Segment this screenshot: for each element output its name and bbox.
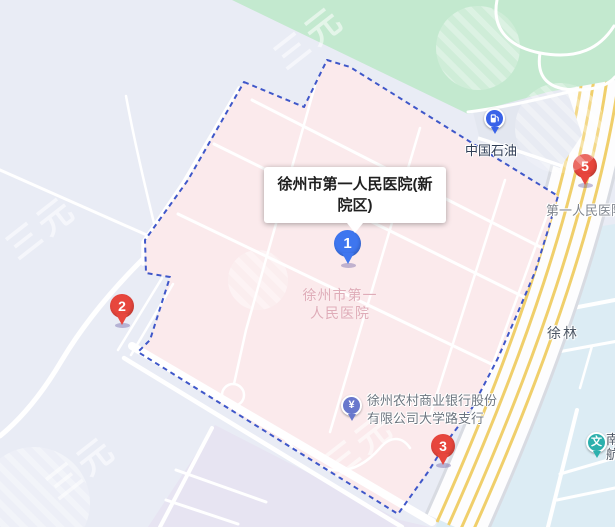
map-canvas[interactable] <box>0 0 615 527</box>
petrochina-pin[interactable] <box>484 108 505 129</box>
hospital-area-label-line1: 徐州市第一 <box>288 286 392 304</box>
bank-pin[interactable]: ¥ <box>341 395 362 416</box>
place-callout[interactable]: 徐州市第一人民医院(新 院区) <box>264 167 446 223</box>
marker-2[interactable]: 2 <box>110 294 134 318</box>
bank-label-line2: 有限公司大学路支行 <box>367 410 497 428</box>
bank-label: 徐州农村商业银行股份 有限公司大学路支行 <box>367 392 497 428</box>
xulin-road-label: 徐林 <box>547 323 579 343</box>
marker-5[interactable]: 5 <box>573 154 597 178</box>
marker-3-number: 3 <box>439 438 447 454</box>
petrochina-label: 中国石油 <box>449 140 533 159</box>
map-viewport[interactable]: 三元 三元 三元 三元 徐州市第一 人民医院 中国石油 第一人民医院 徐林 徐州… <box>0 0 615 527</box>
hospital-roadside-label: 第一人民医院 <box>546 200 615 219</box>
bank-label-line1: 徐州农村商业银行股份 <box>367 392 497 410</box>
marker-5-number: 5 <box>581 158 589 174</box>
school-icon: 文 <box>591 436 602 448</box>
marker-3[interactable]: 3 <box>431 434 455 458</box>
school-pin[interactable]: 文 <box>586 432 607 453</box>
fuel-pump-icon <box>486 113 503 124</box>
school-partial-label: 南 航 <box>606 432 615 462</box>
callout-title-line1: 徐州市第一人民医院(新 <box>269 174 441 195</box>
hospital-area-label: 徐州市第一 人民医院 <box>288 286 392 322</box>
callout-title-line2: 院区) <box>269 195 441 216</box>
bank-icon: ¥ <box>348 399 354 411</box>
hospital-area-label-line2: 人民医院 <box>288 304 392 322</box>
marker-2-number: 2 <box>118 298 126 314</box>
